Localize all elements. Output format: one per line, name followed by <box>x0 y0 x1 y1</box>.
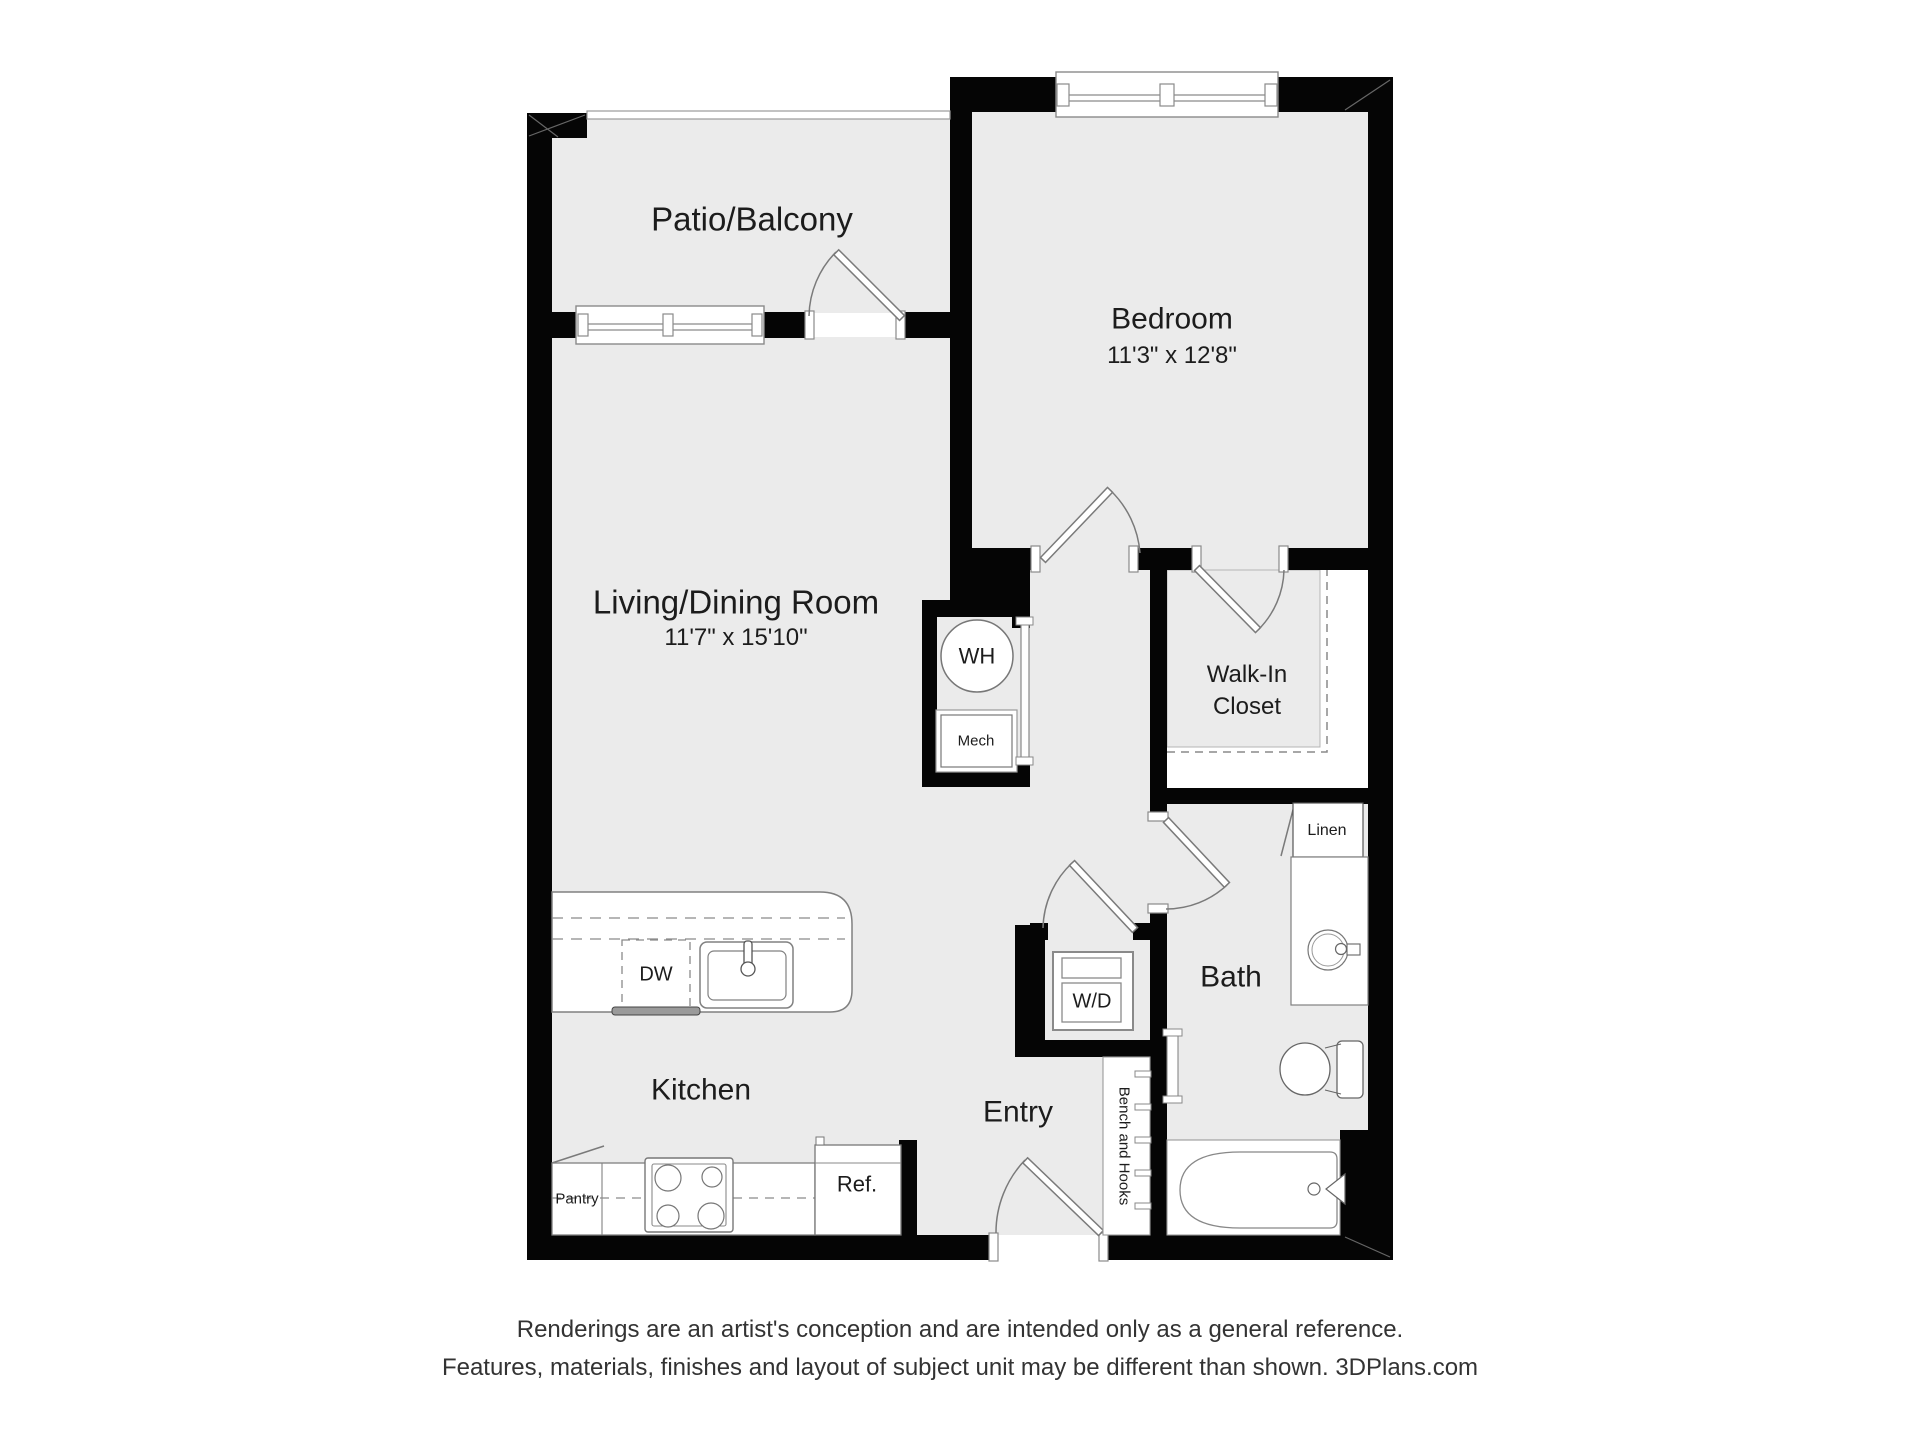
living-window <box>576 306 764 344</box>
wall-patio-c <box>902 312 950 338</box>
wall-kitchen-stub <box>899 1140 917 1235</box>
wall-bedroom-bottom-a <box>950 548 1035 570</box>
living-dining-label: Living/Dining Room <box>593 581 879 622</box>
floor-plan-page: Patio/Balcony Bedroom 11'3" x 12'8" Livi… <box>0 0 1920 1440</box>
wall-wd-post-a <box>1030 923 1048 940</box>
vanity-sink-icon <box>1291 857 1368 1005</box>
kitchen-sink-icon <box>700 941 793 1008</box>
wall-bedroom-bottom-c <box>1283 548 1368 570</box>
mechanical-label: Mech <box>958 733 995 752</box>
disclaimer-line-1: Renderings are an artist's conception an… <box>0 1316 1920 1344</box>
entry-label: Entry <box>983 1093 1053 1131</box>
bathtub-icon <box>1167 1140 1345 1235</box>
bedroom-dimensions: 11'3" x 12'8" <box>1107 341 1237 371</box>
disclaimer-line-2: Features, materials, finishes and layout… <box>0 1354 1920 1382</box>
pantry-label: Pantry <box>555 1191 598 1210</box>
refrigerator-label: Ref. <box>837 1170 877 1198</box>
patio-label: Patio/Balcony <box>651 198 853 239</box>
wall-patio-a <box>552 312 576 338</box>
wall-left <box>527 113 552 1260</box>
linen-label: Linen <box>1307 821 1346 841</box>
walk-in-closet-label: Walk-In Closet <box>1207 659 1287 723</box>
washer-dryer-label: W/D <box>1073 990 1112 1015</box>
wall-hall-b <box>1150 912 1167 1235</box>
kitchen-label: Kitchen <box>651 1071 751 1109</box>
wall-wh-left <box>922 600 937 787</box>
dishwasher-handle <box>612 1007 700 1015</box>
wall-right <box>1368 77 1393 1260</box>
kitchen-island <box>552 892 852 1015</box>
floor-plan-drawing <box>0 0 1920 1440</box>
stove-icon <box>645 1158 733 1232</box>
wall-bottom-a <box>527 1235 993 1260</box>
bedroom-label: Bedroom <box>1111 300 1233 338</box>
wall-patio-b <box>764 312 810 338</box>
wall-wd-left <box>1015 925 1045 1057</box>
dishwasher-label: DW <box>639 963 672 988</box>
water-heater-label: WH <box>959 642 996 670</box>
wall-bath-top <box>1150 788 1393 804</box>
utility-closet-door <box>1021 622 1029 762</box>
wall-bath-jog <box>1340 1130 1393 1260</box>
wall-bedroom-left <box>950 77 972 570</box>
bedroom-window <box>1056 72 1278 117</box>
wall-hall-a <box>1150 552 1167 817</box>
living-dining-dimensions: 11'7" x 15'10" <box>664 623 807 653</box>
bench-hooks-label: Bench and Hooks <box>1114 1087 1133 1205</box>
bath-label: Bath <box>1200 958 1262 996</box>
wall-wd-bottom <box>1015 1040 1167 1057</box>
patio-railing <box>587 111 950 119</box>
